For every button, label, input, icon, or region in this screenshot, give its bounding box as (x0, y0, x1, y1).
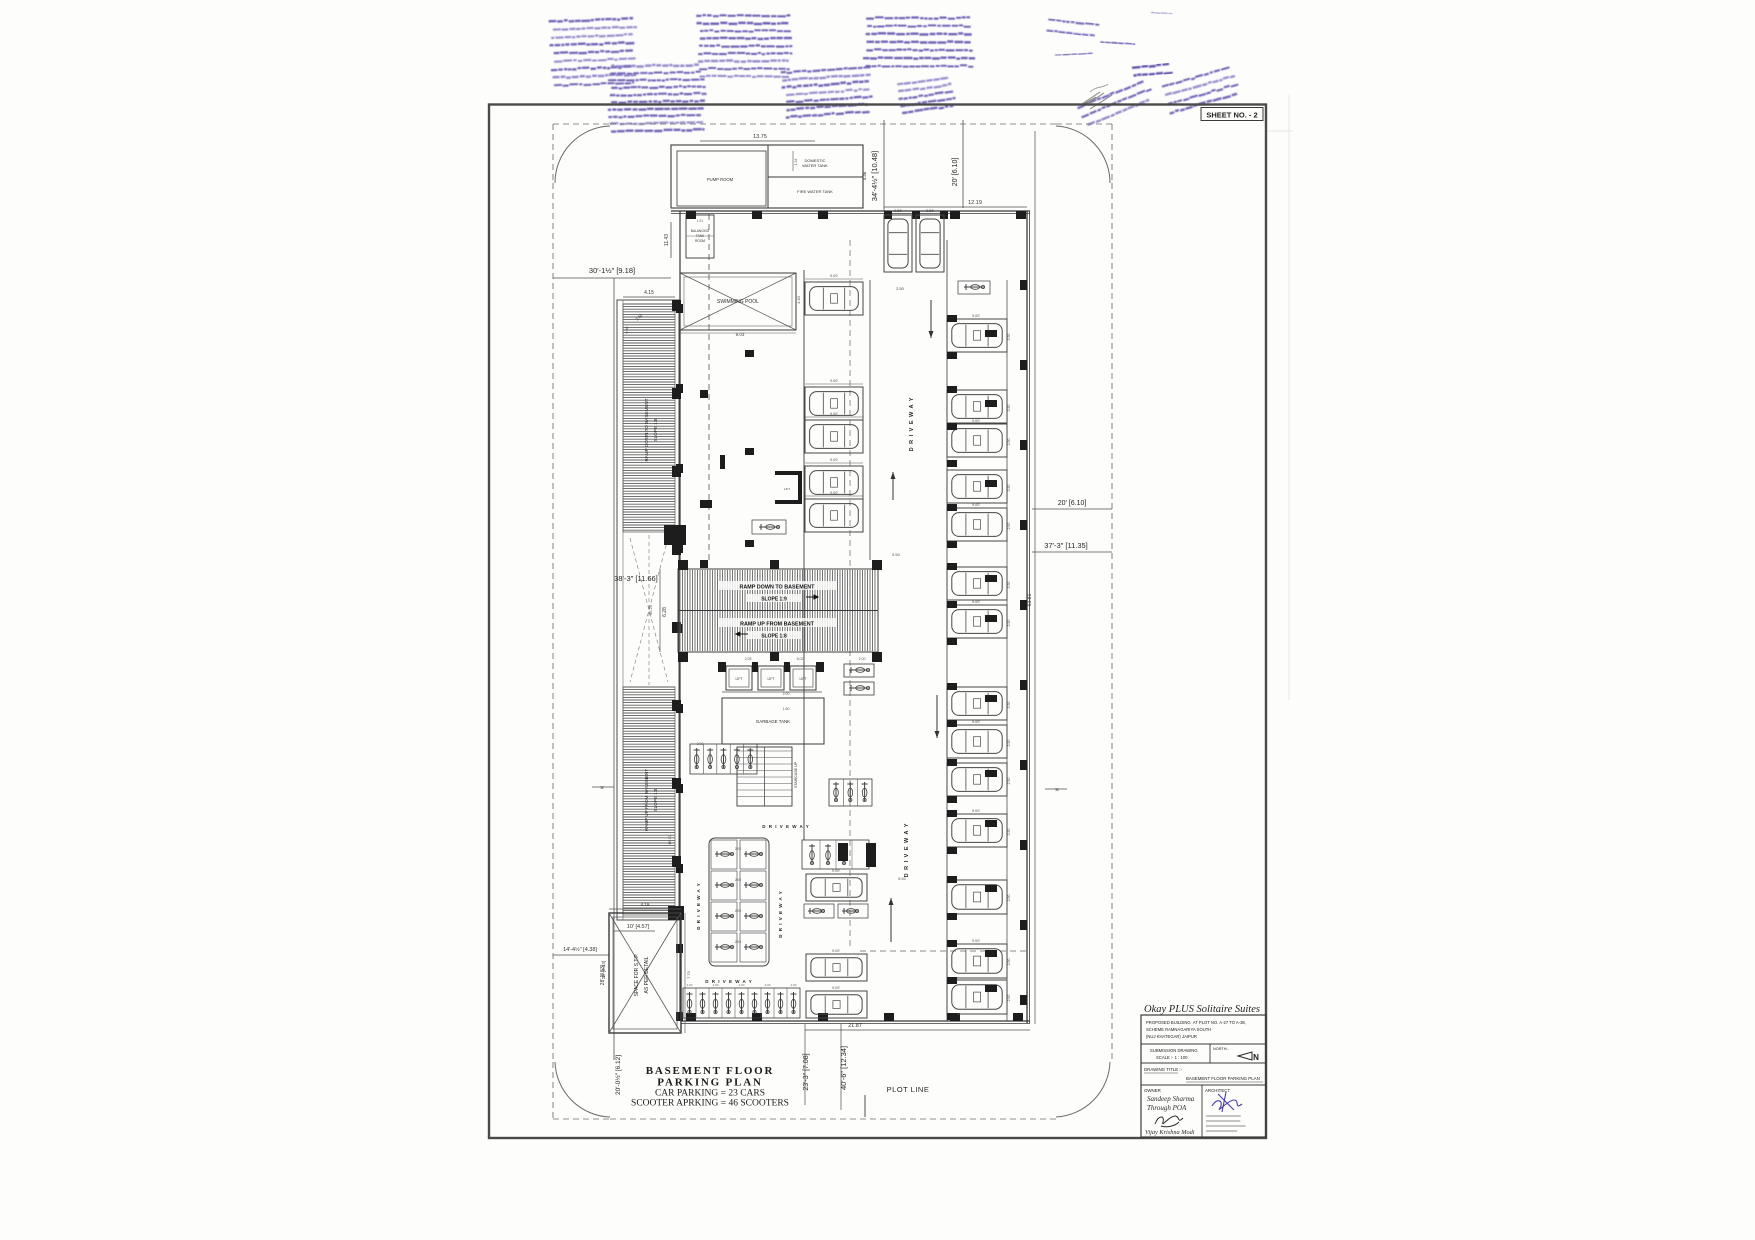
svg-text:9.00′: 9.00′ (832, 869, 840, 873)
svg-text:1.80: 1.80 (783, 707, 790, 711)
svg-text:1.34: 1.34 (794, 159, 798, 166)
svg-text:2.00: 2.00 (783, 692, 790, 696)
svg-text:SWIMMING POOL: SWIMMING POOL (717, 299, 759, 305)
svg-text:2.50: 2.50 (1007, 523, 1011, 530)
svg-text:BASEMENT FLOOR: BASEMENT FLOOR (646, 1065, 775, 1077)
svg-text:2.50: 2.50 (894, 208, 903, 213)
svg-text:2.00: 2.00 (687, 983, 693, 987)
svg-text:SCOOTER APRKING = 46 SCOOTERS: SCOOTER APRKING = 46 SCOOTERS (631, 1099, 789, 1109)
svg-text:2.50: 2.50 (896, 286, 905, 291)
svg-text:20′ [6.10]: 20′ [6.10] (1058, 500, 1087, 507)
svg-text:2.50: 2.50 (1007, 485, 1011, 492)
svg-text:20′ [6.10]: 20′ [6.10] (952, 158, 959, 187)
svg-text:Vijay Krishna Modi: Vijay Krishna Modi (1145, 1129, 1195, 1136)
svg-text:2.50: 2.50 (1007, 334, 1011, 341)
svg-text:2.50: 2.50 (1007, 620, 1011, 627)
svg-text:9.00′: 9.00′ (830, 379, 838, 383)
svg-text:Sandeep Sharma: Sandeep Sharma (1147, 1095, 1195, 1103)
svg-text:37′-3″ [11.35]: 37′-3″ [11.35] (1044, 541, 1088, 550)
svg-text:4.19: 4.19 (641, 902, 650, 907)
svg-text:PLOT LINE: PLOT LINE (887, 1085, 930, 1094)
svg-text:9.00′: 9.00′ (972, 419, 980, 423)
svg-text:9.00′: 9.00′ (830, 491, 838, 495)
svg-text:RAMP DOWN TO BASEMENT: RAMP DOWN TO BASEMENT (740, 585, 816, 591)
svg-text:STAIRCASE UP: STAIRCASE UP (794, 761, 798, 788)
svg-text:SLOPE 1:8: SLOPE 1:8 (761, 634, 787, 640)
svg-text:NORTH:-: NORTH:- (1213, 1047, 1229, 1051)
svg-text:2.00: 2.00 (697, 742, 704, 746)
svg-text:9.00′: 9.00′ (972, 314, 980, 318)
svg-text:LIFT: LIFT (768, 677, 775, 681)
svg-text:34′-4½″ [10.48]: 34′-4½″ [10.48] (870, 151, 879, 201)
svg-text:RAMP UP FROM BASEMENT: RAMP UP FROM BASEMENT (644, 769, 649, 831)
svg-text:D R I V E W A Y: D R I V E W A Y (696, 882, 701, 930)
svg-text:SUBMISSION DRAWING: SUBMISSION DRAWING (1150, 1048, 1198, 1053)
svg-text:2.50: 2.50 (1007, 829, 1011, 836)
svg-text:45.23: 45.23 (648, 604, 653, 615)
svg-text:5.50: 5.50 (898, 876, 907, 881)
svg-text:2.00: 2.00 (735, 940, 741, 944)
svg-text:PARKING PLAN: PARKING PLAN (657, 1077, 762, 1089)
svg-text:WATER TANK: WATER TANK (802, 163, 828, 168)
svg-text:4.40: 4.40 (796, 295, 801, 304)
svg-text:5.50: 5.50 (892, 552, 901, 557)
svg-text:FIRE WATER TANK: FIRE WATER TANK (797, 189, 833, 194)
svg-text:2.50: 2.50 (1007, 702, 1011, 709)
svg-text:2.05: 2.05 (745, 657, 752, 661)
svg-text:SCHEME RAMNAGARIYA SOUTH: SCHEME RAMNAGARIYA SOUTH (1146, 1027, 1211, 1032)
svg-text:6.02: 6.02 (797, 657, 804, 661)
svg-text:9.00′: 9.00′ (972, 600, 980, 604)
svg-text:2.00: 2.00 (735, 878, 741, 882)
svg-text:2.00: 2.00 (765, 983, 771, 987)
svg-text:ARCHITECT: ARCHITECT (1205, 1088, 1230, 1093)
svg-text:SLOPE 1:8: SLOPE 1:8 (653, 788, 658, 811)
svg-text:DRAWING TITLE :-: DRAWING TITLE :- (1144, 1067, 1183, 1072)
svg-text:7.79: 7.79 (686, 970, 691, 979)
svg-text:BALANCING: BALANCING (691, 229, 710, 233)
svg-text:D R I V E W A Y: D R I V E W A Y (778, 890, 783, 938)
svg-text:6.28: 6.28 (662, 607, 668, 617)
svg-text:9.00′: 9.00′ (972, 503, 980, 507)
svg-text:4.46: 4.46 (862, 171, 867, 180)
svg-text:CAR PARKING = 23 CARS: CAR PARKING = 23 CARS (655, 1089, 765, 1099)
svg-text:GARBAGE TANK: GARBAGE TANK (756, 719, 790, 724)
svg-text:D R I V E W A Y: D R I V E W A Y (909, 397, 915, 452)
svg-text:2.50: 2.50 (1007, 959, 1011, 966)
svg-text:9.00′: 9.00′ (830, 412, 838, 416)
svg-text:×: × (600, 785, 604, 792)
svg-text:10′ [4.57]: 10′ [4.57] (627, 924, 650, 930)
svg-text:23′-3″ [7.08]: 23′-3″ [7.08] (803, 1053, 810, 1090)
svg-text:Through POA: Through POA (1147, 1104, 1187, 1112)
svg-text:RAMP UP FROM BASEMENT: RAMP UP FROM BASEMENT (740, 622, 814, 628)
svg-text:2.50: 2.50 (1007, 778, 1011, 785)
svg-text:SLOPE 1:8: SLOPE 1:8 (653, 418, 658, 441)
svg-text:RAMP DOWN TO BASEMENT: RAMP DOWN TO BASEMENT (644, 398, 649, 461)
svg-text:LIFT: LIFT (784, 487, 790, 491)
svg-text:LIFT: LIFT (736, 677, 743, 681)
svg-text:2.00: 2.00 (735, 847, 741, 851)
svg-text:2.50: 2.50 (926, 208, 935, 213)
svg-text:D R I V E W A Y: D R I V E W A Y (705, 979, 753, 984)
svg-text:2.50: 2.50 (1007, 405, 1011, 412)
svg-text:14′-4½″ [4.38]: 14′-4½″ [4.38] (563, 946, 597, 953)
svg-text:BASEMENT FLOOR PARKING PLAN: BASEMENT FLOOR PARKING PLAN (1186, 1076, 1260, 1081)
svg-text:9.00′: 9.00′ (832, 986, 840, 990)
svg-text:2.00: 2.00 (735, 909, 741, 913)
svg-text:2.50: 2.50 (1007, 740, 1011, 747)
svg-text:38′-3″ [11.66]: 38′-3″ [11.66] (614, 574, 658, 583)
svg-text:12.19: 12.19 (968, 200, 982, 206)
svg-text:Okay PLUS Solitaire Suites: Okay PLUS Solitaire Suites (1144, 1004, 1260, 1015)
svg-text:1.91: 1.91 (697, 219, 703, 223)
svg-text:0.36: 0.36 (625, 327, 629, 334)
svg-text:×: × (1055, 787, 1059, 794)
svg-text:D R I V E W A Y: D R I V E W A Y (904, 823, 910, 878)
svg-text:AS PER DETAIL: AS PER DETAIL (644, 956, 650, 993)
svg-text:40′-6″ [12.34]: 40′-6″ [12.34] (839, 1046, 848, 1090)
svg-text:9.00′: 9.00′ (830, 458, 838, 462)
svg-text:11.43: 11.43 (664, 234, 670, 246)
svg-text:9.00′: 9.00′ (832, 949, 840, 953)
svg-text:9.00′: 9.00′ (830, 274, 838, 278)
svg-text:(NUJ KHATEGAR) JAIPUR: (NUJ KHATEGAR) JAIPUR (1146, 1034, 1197, 1039)
svg-text:PUMP ROOM: PUMP ROOM (707, 177, 734, 182)
svg-text:2.50: 2.50 (1007, 995, 1011, 1002)
svg-text:2.00: 2.00 (791, 983, 797, 987)
svg-text:2.50: 2.50 (1007, 439, 1011, 446)
svg-text:2.50: 2.50 (1007, 895, 1011, 902)
svg-text:LIFT: LIFT (800, 677, 807, 681)
svg-text:N: N (1253, 1053, 1259, 1062)
svg-text:SPACE FOR S.T.P.: SPACE FOR S.T.P. (634, 954, 640, 997)
svg-text:13.75: 13.75 (753, 134, 767, 140)
svg-text:9.00′: 9.00′ (972, 809, 980, 813)
svg-text:30′-1½″ [9.18]: 30′-1½″ [9.18] (589, 266, 635, 275)
svg-text:SCALE :- 1 : 100: SCALE :- 1 : 100 (1156, 1055, 1188, 1060)
svg-text:ROOM: ROOM (695, 239, 705, 243)
svg-text:SHEET NO. - 2: SHEET NO. - 2 (1206, 111, 1257, 120)
svg-text:2.50: 2.50 (1007, 582, 1011, 589)
svg-text:28′ [8.53]: 28′ [8.53] (601, 961, 606, 979)
svg-text:9.00′: 9.00′ (972, 939, 980, 943)
svg-text:9.00′: 9.00′ (972, 720, 980, 724)
svg-text:PROPOSED BUILDING AT PLOT NO.: PROPOSED BUILDING AT PLOT NO. A-27 TO A-… (1146, 1020, 1246, 1025)
svg-text:D R I V E W A Y: D R I V E W A Y (762, 824, 810, 829)
svg-text:2.00: 2.00 (859, 657, 866, 661)
svg-text:20′-0½″ [6.12]: 20′-0½″ [6.12] (614, 1055, 622, 1095)
svg-text:OWNER: OWNER (1144, 1088, 1161, 1093)
svg-text:4.15: 4.15 (644, 290, 654, 296)
svg-text:SLOPE 1:9: SLOPE 1:9 (761, 597, 787, 603)
svg-text:16.10: 16.10 (667, 834, 672, 845)
